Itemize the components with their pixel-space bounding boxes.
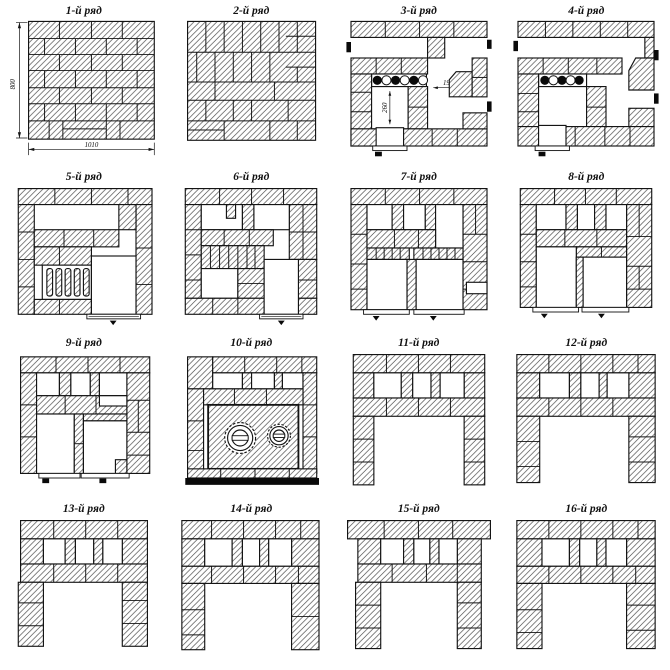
burner-small-icon xyxy=(268,424,291,447)
row-diagram-8: 8-й ряд xyxy=(505,170,669,328)
row-5-plan xyxy=(8,184,160,328)
chamber xyxy=(367,259,407,309)
row-diagram-14: 14-й ряд xyxy=(170,502,334,660)
panel-title: 1-й ряд xyxy=(2,5,166,18)
cleanout-tick-left xyxy=(514,41,519,51)
row-6-plan xyxy=(175,184,327,328)
row-4-plan xyxy=(510,18,662,162)
row-diagram-13: 13-й ряд xyxy=(2,502,166,660)
firebox xyxy=(91,256,136,314)
panel-title: 4-й ряд xyxy=(505,5,669,18)
door-mark xyxy=(260,314,303,325)
panel-title: 14-й ряд xyxy=(170,503,334,516)
panel-title: 13-й ряд xyxy=(2,503,166,516)
grate-bars xyxy=(42,265,91,299)
cleanout-tick-right xyxy=(487,40,492,49)
svg-text:800: 800 xyxy=(10,79,17,90)
door-mark xyxy=(363,310,409,321)
svg-text:1010: 1010 xyxy=(84,142,98,149)
door-mark xyxy=(414,310,464,321)
dimension-height: 800 xyxy=(10,23,28,138)
row-11-plan xyxy=(343,350,495,494)
row-2-plan xyxy=(175,18,327,162)
door-mark xyxy=(372,146,406,156)
row-14-plan xyxy=(175,516,327,660)
cleanout-tick-right xyxy=(654,50,659,60)
door-mark xyxy=(39,473,80,483)
panel-title: 12-й ряд xyxy=(505,337,669,350)
panel-title: 8-й ряд xyxy=(505,171,669,184)
panel-title: 5-й ряд xyxy=(2,171,166,184)
row-diagram-3: 3-й ряд xyxy=(337,4,501,162)
row-diagram-7: 7-й ряд xyxy=(337,170,501,328)
row-9-plan xyxy=(8,350,160,494)
burner-large-icon xyxy=(225,423,256,454)
row-diagram-9: 9-й ряд xyxy=(2,336,166,494)
panel-title: 6-й ряд xyxy=(170,171,334,184)
door-mark xyxy=(87,314,141,325)
panel-title: 10-й ряд xyxy=(170,337,334,350)
row-diagram-15: 15-й ряд xyxy=(337,502,501,660)
door-mark xyxy=(81,473,129,483)
panel-title: 2-й ряд xyxy=(170,5,334,18)
row-diagram-16: 16-й ряд xyxy=(505,502,669,660)
cleanout-tick-left xyxy=(346,42,351,52)
narrow-brick-row xyxy=(367,248,409,259)
panel-title: 11-й ряд xyxy=(337,337,501,350)
chamber xyxy=(416,259,463,309)
dimension-width: 1010 xyxy=(28,142,154,155)
chamber xyxy=(36,414,74,473)
grate-holes xyxy=(371,74,427,87)
panel-title: 15-й ряд xyxy=(337,503,501,516)
row-13-plan xyxy=(8,516,160,660)
row-10-plan xyxy=(175,350,327,494)
row-1-plan: 800 1010 xyxy=(8,18,160,162)
grate-holes xyxy=(539,74,587,87)
door-mark xyxy=(582,307,629,318)
panel-title: 7-й ряд xyxy=(337,171,501,184)
row-diagram-4: 4-й ряд xyxy=(505,4,669,162)
narrow-brick-row xyxy=(414,248,463,259)
door-mark xyxy=(533,307,579,318)
chamber xyxy=(583,257,626,307)
flue-tick-right xyxy=(487,101,492,111)
row-12-plan xyxy=(510,350,662,494)
row-diagram-2: 2-й ряд xyxy=(170,4,334,162)
ash-pit xyxy=(539,87,587,127)
chamber xyxy=(537,247,577,308)
row-16-plan xyxy=(510,516,662,660)
row-diagram-1: 1-й ряд 800 1010 xyxy=(2,4,166,162)
row-diagram-5: 5-й ряд xyxy=(2,170,166,328)
door-mark xyxy=(535,146,569,156)
row-7-plan xyxy=(343,184,495,328)
row-diagram-6: 6-й ряд xyxy=(170,170,334,328)
panel-title: 9-й ряд xyxy=(2,337,166,350)
flue-tick-right xyxy=(654,93,659,103)
row-diagram-12: 12-й ряд xyxy=(505,336,669,494)
row-15-plan xyxy=(343,516,495,660)
row-diagram-10: 10-й ряд xyxy=(170,336,334,494)
panel-title: 3-й ряд xyxy=(337,5,501,18)
firebox xyxy=(264,259,298,314)
steel-base-bar xyxy=(186,478,320,485)
masonry-rows-grid: 1-й ряд 800 1010 2-й ряд 3 xyxy=(0,0,670,664)
row-diagram-11: 11-й ряд xyxy=(337,336,501,494)
panel-title: 16-й ряд xyxy=(505,503,669,516)
row-3-plan: 260 190 xyxy=(343,18,495,162)
row-8-plan xyxy=(510,184,662,328)
svg-text:260: 260 xyxy=(382,102,389,113)
